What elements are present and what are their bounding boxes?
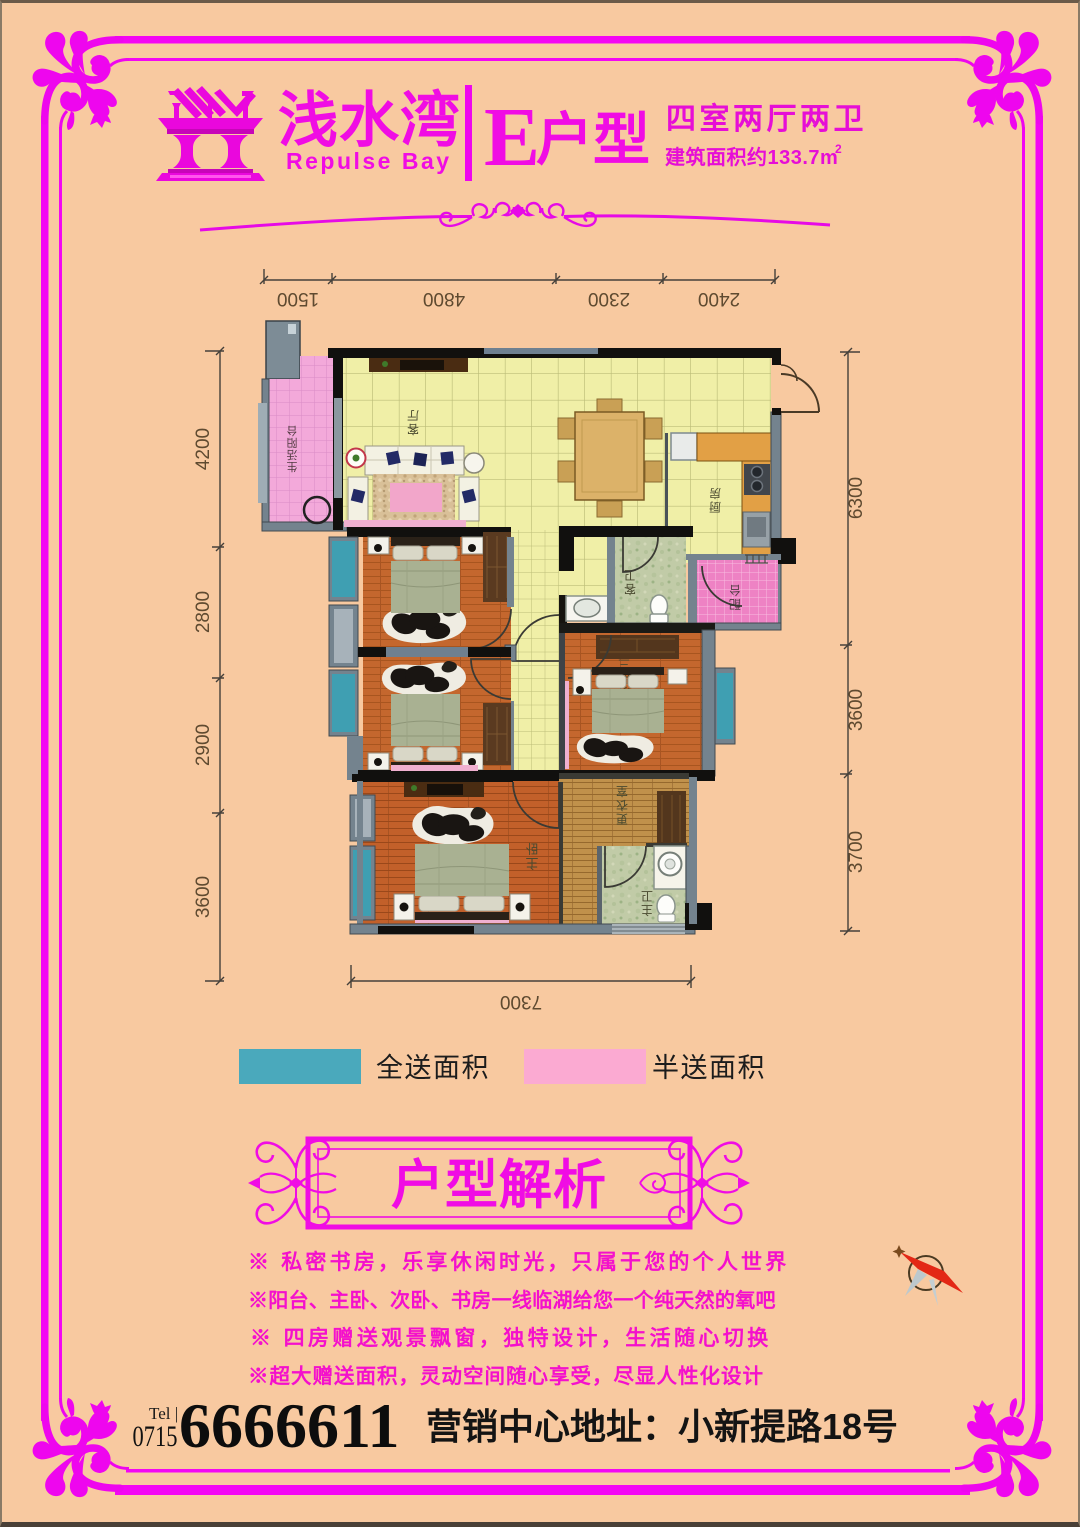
- svg-text:2: 2: [835, 142, 842, 156]
- svg-text:2900: 2900: [193, 724, 214, 766]
- svg-text:浅水湾: 浅水湾: [278, 87, 461, 154]
- svg-text:2400: 2400: [698, 288, 740, 309]
- svg-text:Repulse Bay: Repulse Bay: [286, 148, 452, 174]
- svg-text:户型解析: 户型解析: [391, 1156, 607, 1215]
- svg-text:4800: 4800: [423, 288, 465, 309]
- svg-text:2300: 2300: [588, 288, 630, 309]
- svg-text:主: 主: [641, 903, 653, 917]
- svg-text:主: 主: [525, 856, 538, 871]
- svg-text:客: 客: [624, 582, 636, 597]
- svg-text:0715: 0715: [133, 1419, 178, 1453]
- svg-text:全送面积: 全送面积: [376, 1053, 490, 1083]
- svg-text:阳: 阳: [287, 436, 298, 449]
- svg-text:活: 活: [287, 448, 298, 461]
- svg-text:台: 台: [729, 583, 741, 598]
- svg-text:厨: 厨: [709, 500, 721, 514]
- svg-text:6666611: 6666611: [179, 1390, 399, 1461]
- svg-text:※阳台、主卧、次卧、书房一线临湖给您一个纯天然的氧吧: ※阳台、主卧、次卧、书房一线临湖给您一个纯天然的氧吧: [248, 1288, 776, 1312]
- svg-text:台: 台: [287, 424, 298, 438]
- svg-text:建筑面积约133.7m: 建筑面积约133.7m: [665, 145, 838, 169]
- svg-text:2800: 2800: [193, 591, 214, 633]
- svg-text:厅: 厅: [407, 408, 419, 422]
- svg-text:※ 私密书房，乐享休闲时光，只属于您的个人世界: ※ 私密书房，乐享休闲时光，只属于您的个人世界: [248, 1250, 789, 1274]
- svg-text:3700: 3700: [846, 831, 867, 873]
- svg-text:四室两厅两卫: 四室两厅两卫: [666, 102, 867, 136]
- svg-text:衣: 衣: [616, 798, 628, 813]
- svg-text:半送面积: 半送面积: [652, 1053, 766, 1083]
- svg-text:4200: 4200: [193, 428, 214, 470]
- svg-text:室: 室: [616, 784, 628, 799]
- svg-text:房: 房: [709, 486, 721, 501]
- svg-text:1500: 1500: [277, 288, 319, 309]
- svg-text:※ 四房赠送观景飘窗，独特设计，生活随心切换: ※ 四房赠送观景飘窗，独特设计，生活随心切换: [250, 1326, 772, 1350]
- svg-text:3600: 3600: [846, 689, 867, 731]
- svg-text:营销中心地址：小新提路18号: 营销中心地址：小新提路18号: [426, 1406, 898, 1447]
- svg-text:E: E: [484, 91, 540, 184]
- svg-text:※超大赠送面积，灵动空间随心享受，尽显人性化设计: ※超大赠送面积，灵动空间随心享受，尽显人性化设计: [248, 1364, 764, 1388]
- svg-text:更: 更: [616, 812, 628, 826]
- svg-text:客: 客: [407, 422, 419, 437]
- svg-text:7300: 7300: [500, 991, 542, 1012]
- svg-text:户型: 户型: [536, 108, 650, 172]
- svg-text:生: 生: [287, 460, 298, 474]
- svg-text:3600: 3600: [193, 876, 214, 918]
- svg-text:卧: 卧: [525, 841, 538, 856]
- svg-text:卫: 卫: [641, 889, 653, 903]
- svg-text:6300: 6300: [846, 477, 867, 519]
